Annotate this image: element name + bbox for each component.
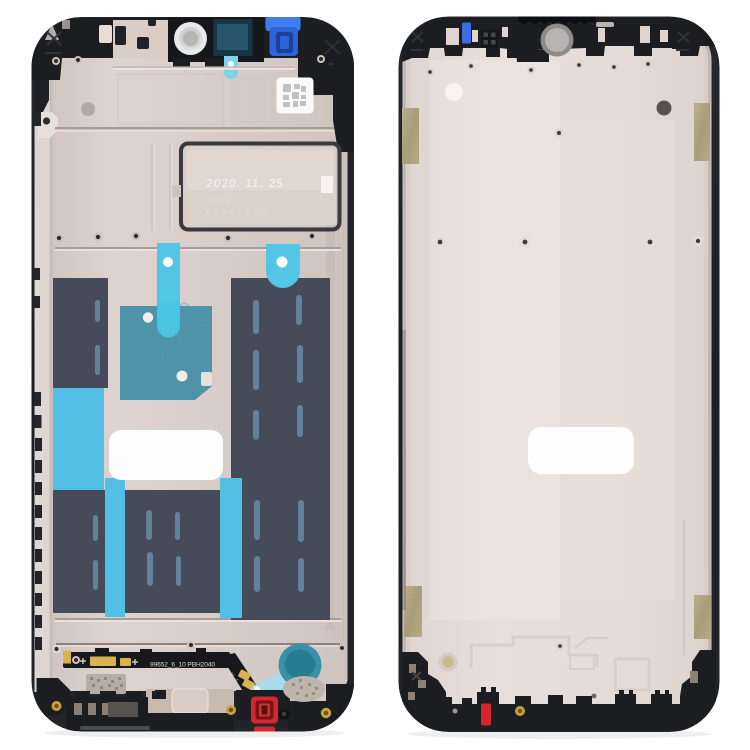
svg-text:SPK-: SPK- bbox=[224, 672, 236, 678]
svg-text:SPK+: SPK+ bbox=[226, 678, 239, 684]
svg-text:SIN(G): SIN(G) bbox=[205, 195, 236, 205]
svg-text:2020. 11. 25: 2020. 11. 25 bbox=[206, 178, 285, 190]
svg-text:99652_6_10 PBH2040: 99652_6_10 PBH2040 bbox=[150, 662, 215, 669]
svg-text:PBA 01.2 V0: PBA 01.2 V0 bbox=[205, 207, 268, 217]
